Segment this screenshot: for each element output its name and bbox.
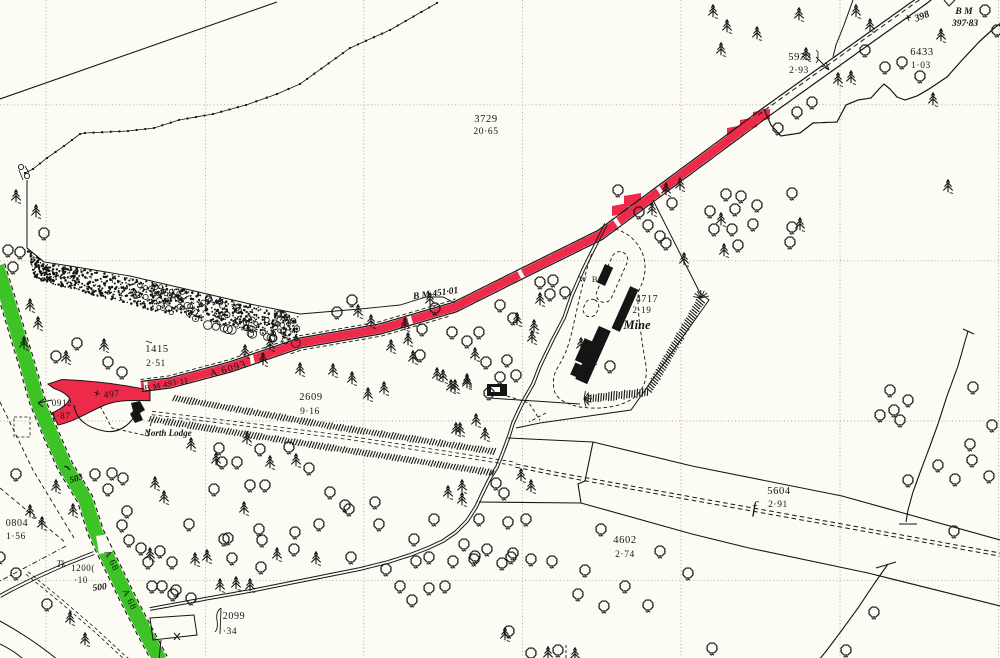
svg-text:4602: 4602: [613, 535, 636, 546]
svg-text:5932: 5932: [788, 52, 811, 63]
svg-text:2·19: 2·19: [633, 305, 652, 315]
svg-text:397·83: 397·83: [951, 19, 978, 29]
svg-text:·34: ·34: [223, 627, 237, 637]
svg-text:·10: ·10: [74, 575, 88, 585]
svg-text:500: 500: [92, 582, 108, 594]
svg-text:3729: 3729: [474, 114, 497, 125]
svg-text:1·56: 1·56: [6, 532, 26, 542]
svg-text:6433: 6433: [910, 47, 933, 58]
svg-text:North Lodge: North Lodge: [143, 428, 191, 438]
svg-text:5604: 5604: [767, 486, 791, 497]
svg-text:0912: 0912: [52, 398, 72, 408]
svg-text:Mine: Mine: [622, 318, 651, 332]
svg-text:9·16: 9·16: [300, 407, 320, 417]
svg-text:1200(: 1200(: [71, 563, 95, 573]
svg-text:20·65: 20·65: [473, 127, 498, 137]
svg-text:B M: B M: [954, 7, 973, 17]
svg-text:2·74: 2·74: [615, 550, 635, 560]
svg-text:0804: 0804: [6, 518, 28, 529]
svg-text:1·03: 1·03: [911, 61, 931, 71]
svg-text:1415: 1415: [145, 344, 168, 355]
svg-text:497: 497: [103, 389, 120, 401]
svg-text:Tk: Tk: [57, 559, 67, 569]
svg-text:2609: 2609: [299, 392, 322, 403]
svg-text:1·87: 1·87: [52, 411, 71, 421]
svg-text:2099: 2099: [223, 611, 245, 622]
svg-text:W B: W B: [579, 274, 599, 284]
svg-text:2·91: 2·91: [768, 500, 788, 510]
svg-text:4717: 4717: [636, 294, 658, 305]
svg-text:2·51: 2·51: [146, 359, 166, 369]
svg-text:2·93: 2·93: [789, 66, 809, 76]
